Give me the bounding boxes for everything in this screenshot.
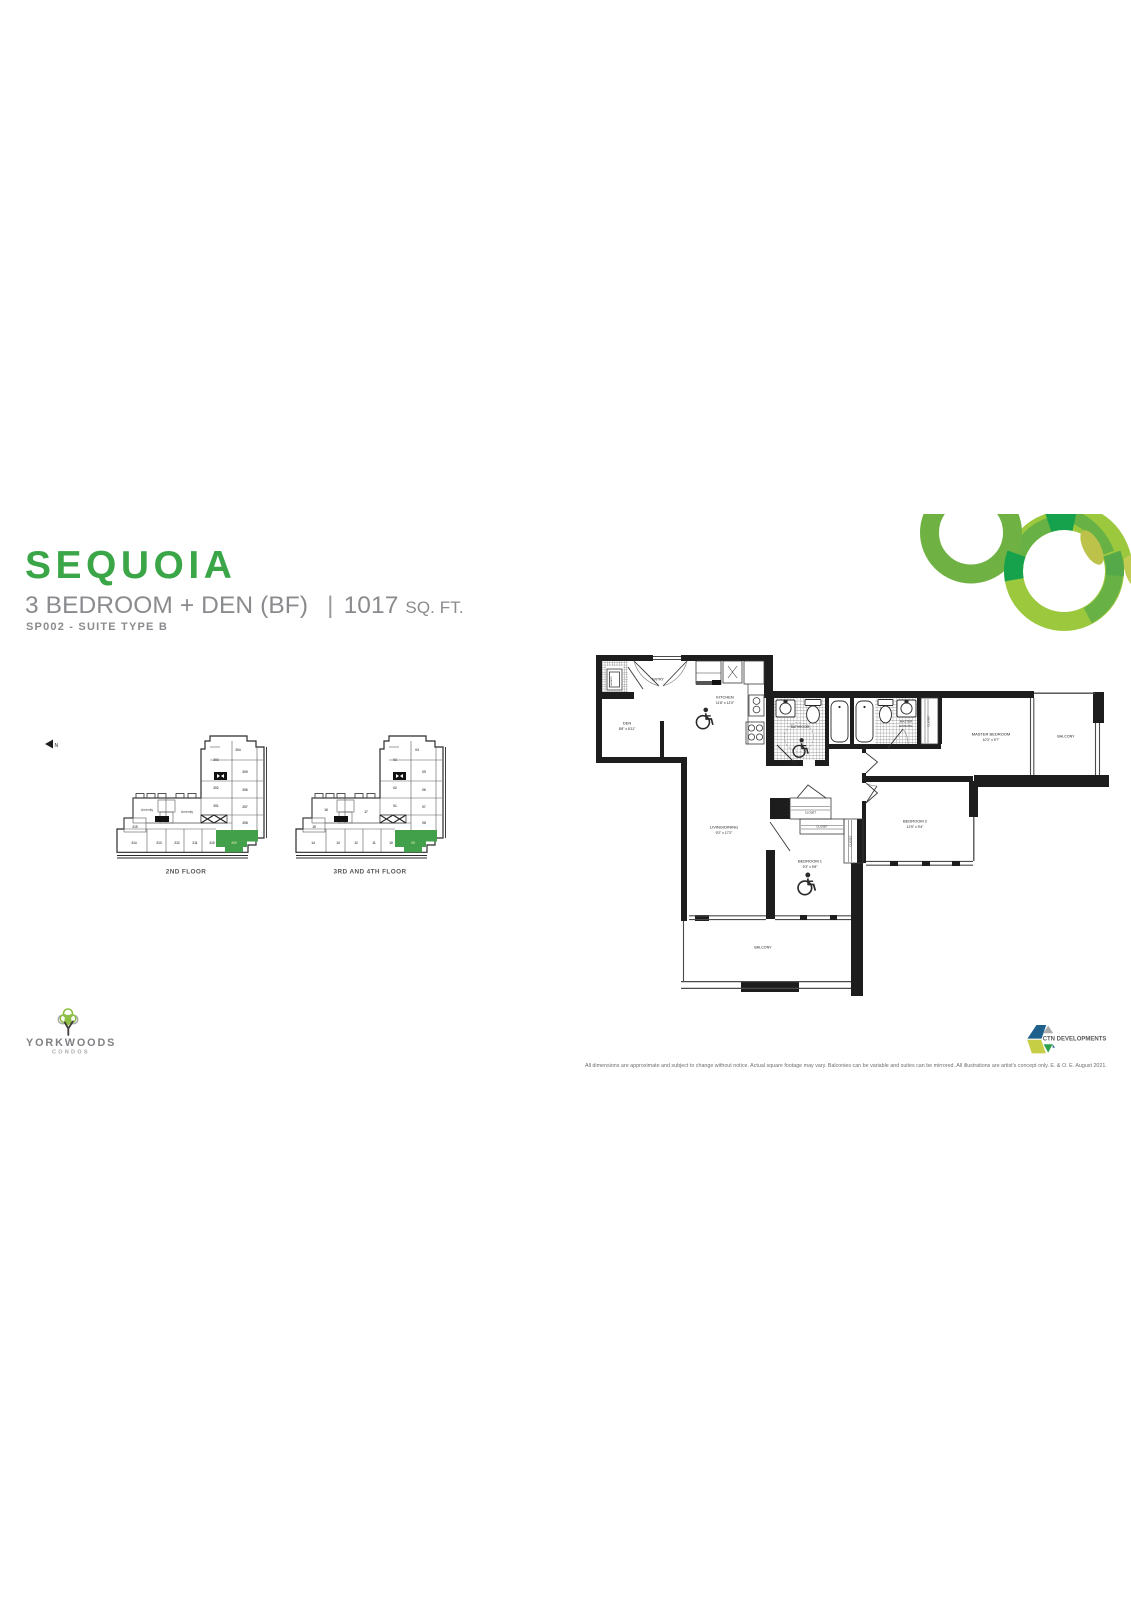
svg-text:3RD AND 4TH FLOOR: 3RD AND 4TH FLOOR — [334, 869, 407, 876]
svg-text:212: 212 — [174, 841, 180, 845]
svg-text:11'8" x 12'0": 11'8" x 12'0" — [716, 701, 735, 705]
svg-text:MASTER: MASTER — [900, 720, 913, 724]
svg-text:211: 211 — [192, 841, 197, 845]
svg-text:03: 03 — [393, 758, 397, 762]
svg-text:209: 209 — [231, 841, 237, 845]
svg-text:CLOSET: CLOSET — [816, 825, 827, 829]
svg-text:01: 01 — [393, 804, 397, 808]
svg-text:16: 16 — [324, 808, 328, 812]
svg-text:02: 02 — [393, 786, 397, 790]
svg-text:11: 11 — [372, 841, 376, 845]
svg-text:LIVING/DINING: LIVING/DINING — [710, 825, 738, 830]
svg-text:05: 05 — [422, 770, 426, 774]
svg-text:KITCHEN: KITCHEN — [716, 695, 734, 700]
svg-text:201: 201 — [213, 804, 219, 808]
svg-text:10: 10 — [389, 841, 393, 845]
svg-text:9'2" x 17'2": 9'2" x 17'2" — [716, 831, 734, 835]
svg-text:8'8" x 8'11": 8'8" x 8'11" — [619, 727, 636, 731]
svg-text:202: 202 — [213, 786, 219, 790]
svg-text:BALCONY: BALCONY — [1057, 735, 1075, 739]
svg-text:204: 204 — [235, 748, 241, 752]
svg-text:ENTRY: ENTRY — [652, 678, 664, 682]
svg-text:207: 207 — [242, 805, 248, 809]
svg-text:All dimensions are approximate: All dimensions are approximate and subje… — [585, 1063, 1107, 1069]
svg-text:12: 12 — [354, 841, 358, 845]
svg-text:07: 07 — [422, 805, 426, 809]
svg-text:215: 215 — [132, 825, 138, 829]
svg-text:205: 205 — [242, 770, 248, 774]
svg-text:LAUNDRY: LAUNDRY — [610, 675, 613, 686]
svg-text:CLOSET: CLOSET — [805, 811, 816, 815]
svg-text:203: 203 — [213, 758, 219, 762]
svg-text:CONDOS: CONDOS — [52, 1049, 90, 1055]
svg-text:BEDROOM 1: BEDROOM 1 — [798, 859, 823, 864]
svg-text:YORKWOODS: YORKWOODS — [26, 1037, 116, 1049]
svg-text:08: 08 — [422, 821, 426, 825]
svg-text:Amenity: Amenity — [141, 808, 154, 812]
svg-text:09: 09 — [411, 841, 415, 845]
svg-text:210: 210 — [209, 841, 215, 845]
svg-text:CTN DEVELOPMENTS: CTN DEVELOPMENTS — [1043, 1037, 1107, 1043]
svg-text:208: 208 — [242, 821, 248, 825]
svg-text:BATHROOM: BATHROOM — [791, 725, 810, 729]
svg-text:DEN: DEN — [623, 721, 632, 726]
svg-text:06: 06 — [422, 788, 426, 792]
svg-text:04: 04 — [415, 748, 419, 752]
svg-text:17: 17 — [364, 810, 368, 814]
svg-text:N: N — [55, 743, 59, 749]
svg-text:CLOSET: CLOSET — [927, 715, 931, 726]
svg-text:BEDROOM 2: BEDROOM 2 — [903, 819, 928, 824]
svg-text:MASTER BEDROOM: MASTER BEDROOM — [972, 732, 1010, 737]
svg-text:15: 15 — [312, 825, 316, 829]
svg-text:214: 214 — [131, 841, 137, 845]
svg-text:BALCONY: BALCONY — [754, 946, 772, 950]
svg-text:206: 206 — [242, 788, 248, 792]
svg-text:ENSUITE: ENSUITE — [899, 724, 912, 728]
svg-text:Amenity: Amenity — [181, 810, 194, 814]
svg-text:213: 213 — [156, 841, 162, 845]
svg-text:14: 14 — [311, 841, 315, 845]
svg-text:13: 13 — [336, 841, 340, 845]
svg-text:12'5" x 9'4": 12'5" x 9'4" — [907, 825, 925, 829]
svg-text:9'3" x 9'8": 9'3" x 9'8" — [803, 865, 819, 869]
svg-text:CLOSET: CLOSET — [849, 835, 853, 846]
svg-text:2ND FLOOR: 2ND FLOOR — [166, 869, 207, 876]
svg-text:10'3" x 9'7": 10'3" x 9'7" — [983, 738, 1001, 742]
